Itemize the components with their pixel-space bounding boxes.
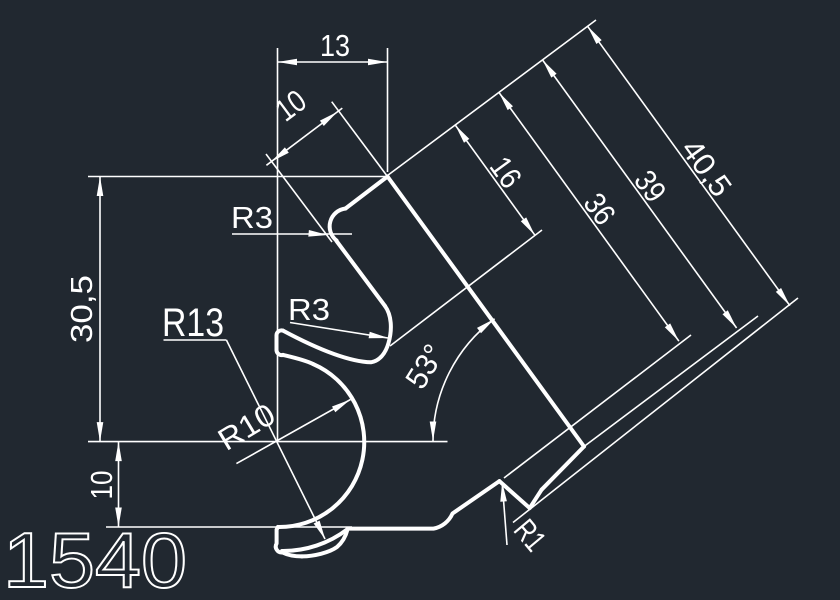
svg-text:16: 16 xyxy=(483,150,529,195)
svg-text:R3: R3 xyxy=(288,292,330,327)
svg-text:1540: 1540 xyxy=(3,516,187,600)
svg-text:10: 10 xyxy=(269,83,313,128)
svg-text:30,5: 30,5 xyxy=(64,275,99,343)
svg-text:39: 39 xyxy=(627,164,673,209)
svg-text:R1: R1 xyxy=(507,513,553,558)
svg-text:R10: R10 xyxy=(212,397,281,458)
svg-text:13: 13 xyxy=(320,28,350,63)
svg-text:R3: R3 xyxy=(231,200,273,235)
svg-text:R13: R13 xyxy=(162,301,224,345)
svg-text:40,5: 40,5 xyxy=(674,133,739,204)
svg-text:10: 10 xyxy=(84,471,119,500)
svg-text:36: 36 xyxy=(577,187,623,232)
